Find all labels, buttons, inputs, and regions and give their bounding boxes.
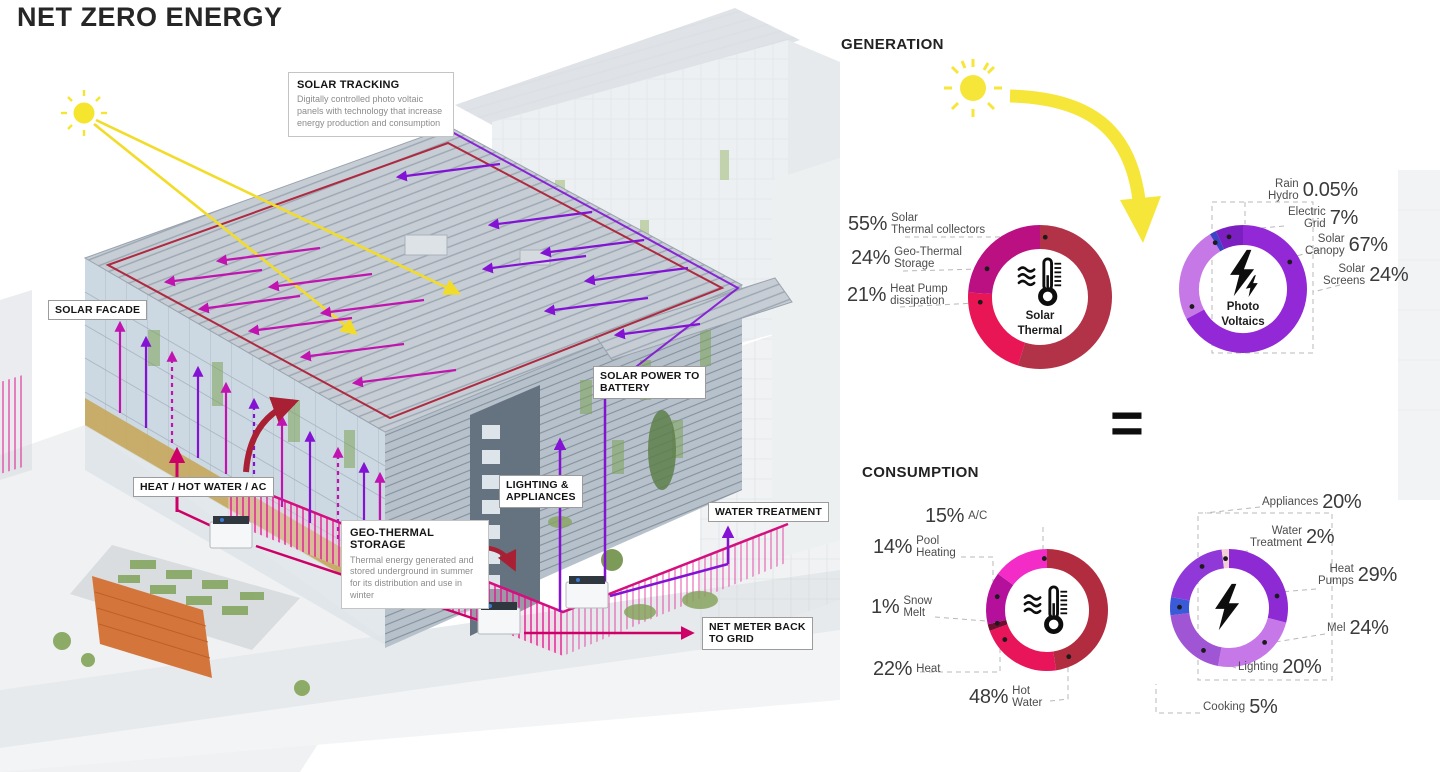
cons-thermal-label-heat: 22% Heat [873,658,940,681]
lighting-appliances-label: LIGHTING & APPLIANCES [499,475,583,508]
generation-solar-thermal-chart: Solar Thermal [965,222,1115,372]
cons-electric-label-lighting: Lighting 20% [1238,656,1321,679]
consumption-electric-chart [1167,546,1289,668]
cons-thermal-label-hot-water: 48% Hot Water [969,685,1042,710]
gen-thermal-label-geo-storage: 24% Geo-Thermal Storage [851,246,962,271]
right-panel-decoration [840,0,1440,772]
cons-thermal-label-ac: 15% A/C [925,505,987,528]
cons-electric-label-cooking: Cooking 5% [1203,696,1278,719]
cons-electric-label-heat-pumps: Heat Pumps 29% [1318,563,1397,588]
cons-electric-label-appliances: Appliances 20% [1262,491,1361,514]
net-meter-label: NET METER BACK TO GRID [702,617,813,650]
solar-tracking-body: Digitally controlled photo voltaic panel… [297,94,445,129]
solar-facade-label: SOLAR FACADE [48,300,147,320]
gen-thermal-label-heat-pump: 21% Heat Pump dissipation [847,283,948,308]
geo-thermal-callout: GEO-THERMAL STORAGE Thermal energy gener… [341,520,489,609]
gen-pv-donut [1176,222,1310,356]
gen-thermal-donut [965,222,1115,372]
generation-heading: GENERATION [841,36,944,53]
geo-thermal-body: Thermal energy generated and stored unde… [350,555,480,602]
infographic-root: NET ZERO ENERGY [0,0,1440,772]
solar-tracking-title: SOLAR TRACKING [297,79,445,91]
solar-power-to-battery-label: SOLAR POWER TO BATTERY [593,366,706,399]
gen-pv-label-solar-screens: Solar Screens 24% [1323,263,1408,288]
consumption-thermal-chart [983,546,1109,672]
gen-pv-label-electric-grid: Electric Grid 7% [1288,206,1358,231]
cons-electric-label-mel: Mel 24% [1327,617,1389,640]
geo-thermal-title: GEO-THERMAL STORAGE [350,527,480,552]
gen-pv-label-rain-hydro: Rain Hydro 0.05% [1268,178,1358,203]
cons-thermal-label-pool-heating: 14% Pool Heating [873,535,956,560]
cons-electric-donut [1167,546,1291,670]
water-treatment-label: WATER TREATMENT [708,502,829,522]
gen-pv-label-solar-canopy: Solar Canopy 67% [1305,233,1388,258]
solar-tracking-callout: SOLAR TRACKING Digitally controlled phot… [288,72,454,137]
cons-thermal-donut [983,546,1111,674]
generation-sun-icon [944,59,1002,117]
cons-electric-label-water-treatment: Water Treatment 2% [1250,525,1334,550]
cons-thermal-label-snow-melt: 1% Snow Melt [871,595,932,620]
equals-sign: = [1110,390,1144,457]
generation-photo-voltaics-chart: Photo Voltaics [1176,222,1310,356]
gen-thermal-label-collectors: 55% Solar Thermal collectors [848,212,985,237]
sun-to-chart-arrow [1010,96,1161,243]
consumption-heading: CONSUMPTION [862,464,979,481]
heat-hot-water-ac-label: HEAT / HOT WATER / AC [133,477,274,497]
